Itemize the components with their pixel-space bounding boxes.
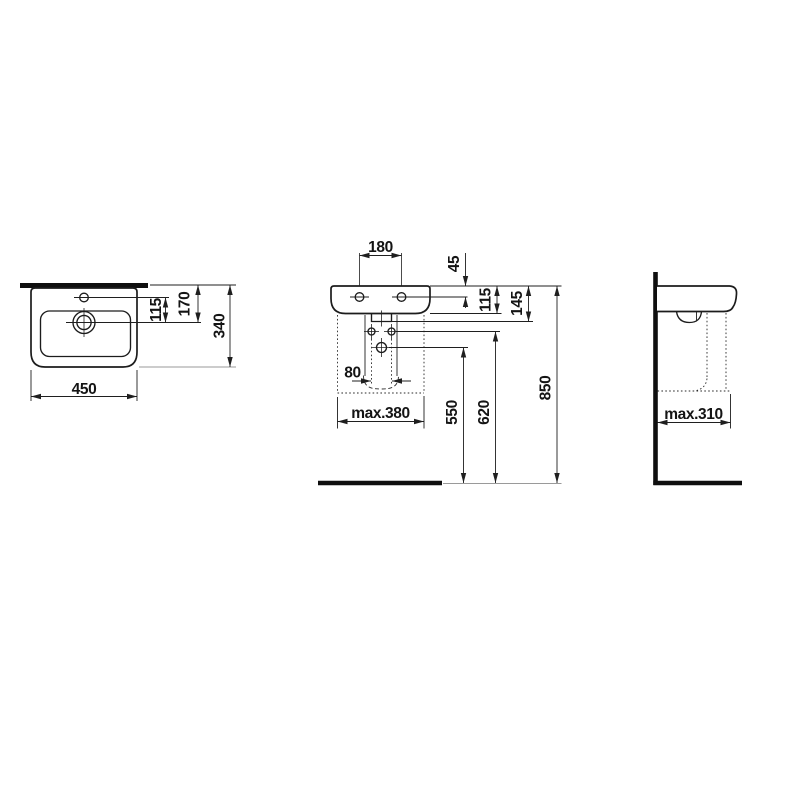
dim-label-supply-spacing: 80 <box>344 365 360 382</box>
dim-label-rim-to-underside: 115 <box>478 287 495 312</box>
siphon-bend <box>364 376 399 390</box>
dim-label-rim-to-outlet: 145 <box>509 290 526 315</box>
dim-label-depth: 340 <box>212 314 229 339</box>
technical-drawing-svg: 450 115 170 340 180 <box>0 0 800 800</box>
front-view: 180 <box>318 239 562 484</box>
dim-label-zone-width: max.380 <box>351 405 409 422</box>
side-view: max.310 <box>653 272 742 485</box>
dim-label-tap-spacing: 180 <box>368 239 393 256</box>
dim-label-rim-to-fixing: 45 <box>446 255 463 272</box>
dim-label-tap-to-drain: 115 <box>148 297 165 322</box>
dim-label-supply-height: 620 <box>476 400 493 425</box>
outlet-profile <box>677 312 702 323</box>
dim-label-width: 450 <box>72 381 97 398</box>
drawing-page: 450 115 170 340 180 <box>0 0 800 800</box>
dim-label-front-to-drain: 170 <box>177 292 194 317</box>
dim-label-zone-depth: max.310 <box>664 406 722 423</box>
top-view: 450 115 170 340 <box>20 283 236 401</box>
basin-front-outline <box>331 286 430 314</box>
pipe-hidden-bend <box>697 379 708 391</box>
basin-side-profile <box>657 286 737 312</box>
dim-label-rim-height: 850 <box>538 376 555 401</box>
dim-label-outlet-height: 550 <box>444 400 461 425</box>
